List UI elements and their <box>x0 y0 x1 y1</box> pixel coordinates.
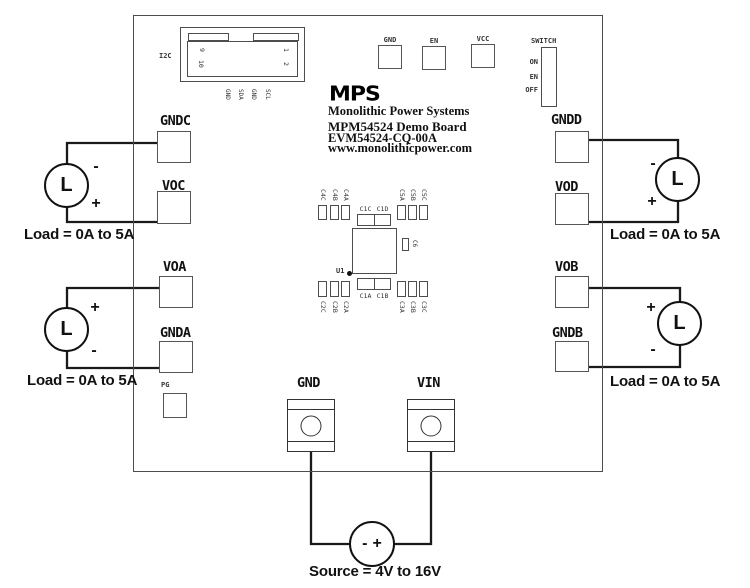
vin-terminal-top-bar <box>408 409 454 410</box>
cap-c1ab-divider <box>374 278 375 290</box>
cap-label-c4b: C4B <box>330 187 339 203</box>
load-topleft-minus-sign: - <box>88 158 104 174</box>
cap-c6 <box>402 238 409 251</box>
terminal-pad-voa <box>159 276 193 308</box>
cap-label-c1d: C1D <box>374 205 391 213</box>
company-name: Monolithic Power Systems <box>328 105 469 118</box>
cap-c5a <box>397 205 406 220</box>
cap-label-c1a: C1A <box>357 292 374 300</box>
terminal-label-gnd: GND <box>297 375 320 391</box>
load-symbol-bottom-right: L <box>657 301 702 346</box>
i2c-connector-label: I2C <box>159 52 172 60</box>
terminal-pad-gndb <box>555 341 589 372</box>
i2c-pin-name-gnd2: GND <box>248 83 258 105</box>
cap-label-c5a: C5A <box>397 187 406 203</box>
gnd-terminal-bottom-bar <box>288 441 334 442</box>
i2c-pin10-number: 10 <box>197 57 205 71</box>
ic-pin1-dot <box>347 271 352 276</box>
load-topleft-plus-sign: + <box>88 195 104 211</box>
vin-terminal-jack-hole <box>421 415 442 436</box>
load-letter: L <box>671 168 683 191</box>
switch-label: SWITCH <box>531 37 556 45</box>
vcc-pad-label: VCC <box>471 35 495 43</box>
load-bottomleft-plus-sign: + <box>87 299 103 315</box>
vcc-test-pad <box>471 44 495 68</box>
mps-logo: MPS <box>329 85 380 105</box>
en-pad-label: EN <box>422 37 446 45</box>
demo-board-connection-diagram: I2C 9 10 1 2 GND SDA GND SCL GND EN VCC … <box>0 0 750 588</box>
pg-test-pad <box>163 393 187 418</box>
terminal-label-gndc: GNDC <box>160 113 191 129</box>
i2c-pin1-number: 1 <box>282 44 290 55</box>
terminal-pad-voc <box>157 191 191 224</box>
terminal-pad-gnda <box>159 341 193 373</box>
terminal-label-gndd: GNDD <box>551 112 582 128</box>
terminal-pad-gndc <box>157 131 191 163</box>
load-label-top-left: Load = 0A to 5A <box>24 226 134 243</box>
cap-label-c1c: C1C <box>357 205 374 213</box>
cap-label-c6: C6 <box>410 237 418 251</box>
switch-position-on: ON <box>512 58 538 66</box>
gnd-terminal-top-bar <box>288 409 334 410</box>
i2c-pin9-number: 9 <box>198 44 206 55</box>
switch-position-en: EN <box>512 73 538 81</box>
cap-c3a <box>397 281 406 297</box>
cap-label-c5b: C5B <box>408 187 417 203</box>
source-label: Source = 4V to 16V <box>290 563 460 580</box>
source-plus-sign: + <box>372 535 381 553</box>
cap-label-c3c: C3C <box>419 299 428 315</box>
ic-u1-label: U1 <box>336 267 344 275</box>
switch-body <box>541 47 557 107</box>
cap-label-c3a: C3A <box>397 299 406 315</box>
cap-c1cd-divider <box>374 214 375 226</box>
i2c-connector-tab-left <box>188 33 229 41</box>
load-letter: L <box>60 174 72 197</box>
cap-c4c <box>318 205 327 220</box>
load-topright-minus-sign: - <box>645 155 661 171</box>
cap-c2c <box>318 281 327 297</box>
i2c-connector-tab-right <box>253 33 299 41</box>
cap-label-c2a: C2A <box>341 299 350 315</box>
source-symbol: - + <box>349 521 395 567</box>
load-letter: L <box>60 318 72 341</box>
switch-position-off: OFF <box>512 86 538 94</box>
gnd-pad-label: GND <box>378 36 402 44</box>
ic-u1-body <box>352 228 397 274</box>
load-letter: L <box>673 312 685 335</box>
en-test-pad <box>422 46 446 70</box>
load-topright-plus-sign: + <box>644 193 660 209</box>
cap-label-c5c: C5C <box>419 187 428 203</box>
load-bottomright-plus-sign: + <box>643 299 659 315</box>
cap-label-c4a: C4A <box>341 187 350 203</box>
cap-c2a <box>341 281 350 297</box>
load-bottomleft-minus-sign: - <box>86 342 102 358</box>
terminal-pad-gndd <box>555 131 589 163</box>
cap-label-c2c: C2C <box>318 299 327 315</box>
load-label-bottom-left: Load = 0A to 5A <box>27 372 137 389</box>
terminal-pad-vob <box>555 276 589 308</box>
pg-pad-label: PG <box>161 381 169 389</box>
load-label-bottom-right: Load = 0A to 5A <box>610 373 720 390</box>
website-url: www.monolithicpower.com <box>328 142 472 155</box>
cap-label-c3b: C3B <box>408 299 417 315</box>
load-symbol-bottom-left: L <box>44 307 89 352</box>
load-symbol-top-right: L <box>655 157 700 202</box>
cap-label-c2b: C2B <box>330 299 339 315</box>
terminal-label-gndb: GNDB <box>552 325 583 341</box>
terminal-label-vin: VIN <box>417 375 440 391</box>
cap-c2b <box>330 281 339 297</box>
cap-c4a <box>341 205 350 220</box>
cap-c4b <box>330 205 339 220</box>
cap-c5c <box>419 205 428 220</box>
terminal-label-voa: VOA <box>163 259 186 275</box>
load-symbol-top-left: L <box>44 163 89 208</box>
i2c-pin-name-gnd1: GND <box>222 83 232 105</box>
load-label-top-right: Load = 0A to 5A <box>610 226 720 243</box>
cap-c3c <box>419 281 428 297</box>
gnd-test-pad <box>378 45 402 69</box>
terminal-label-gnda: GNDA <box>160 325 191 341</box>
vin-terminal-bottom-bar <box>408 441 454 442</box>
vin-banana-terminal <box>407 399 455 452</box>
i2c-pin-name-sda: SDA <box>235 83 245 105</box>
terminal-label-vob: VOB <box>555 259 578 275</box>
i2c-pin2-number: 2 <box>282 57 290 71</box>
cap-c5b <box>408 205 417 220</box>
gnd-banana-terminal <box>287 399 335 452</box>
cap-label-c4c: C4C <box>318 187 327 203</box>
cap-label-c1b: C1B <box>374 292 391 300</box>
gnd-terminal-jack-hole <box>301 415 322 436</box>
load-bottomright-minus-sign: - <box>645 341 661 357</box>
cap-c3b <box>408 281 417 297</box>
terminal-pad-vod <box>555 193 589 225</box>
source-minus-sign: - <box>362 535 367 553</box>
i2c-pin-name-scl: SCL <box>262 83 272 105</box>
